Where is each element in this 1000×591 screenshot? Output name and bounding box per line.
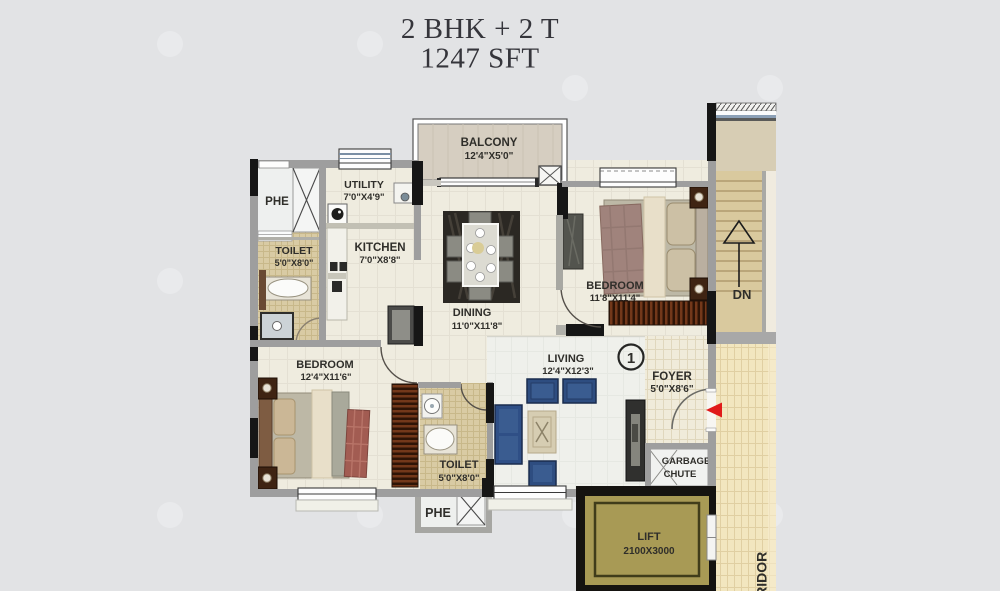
svg-text:BEDROOM: BEDROOM bbox=[586, 280, 643, 292]
svg-text:1247 SFT: 1247 SFT bbox=[420, 43, 539, 75]
svg-text:TOILET: TOILET bbox=[440, 459, 479, 471]
svg-text:12'4"X12'3": 12'4"X12'3" bbox=[542, 366, 594, 377]
svg-text:12'4"X11'6": 12'4"X11'6" bbox=[300, 372, 351, 383]
svg-text:LIFT: LIFT bbox=[637, 531, 660, 543]
svg-text:PHE: PHE bbox=[425, 506, 451, 520]
svg-text:PHE: PHE bbox=[265, 196, 289, 208]
svg-text:11'0"X11'8": 11'0"X11'8" bbox=[452, 321, 503, 332]
svg-text:BEDROOM: BEDROOM bbox=[296, 359, 353, 371]
svg-text:BALCONY: BALCONY bbox=[461, 137, 518, 149]
svg-text:5'0"X8'6": 5'0"X8'6" bbox=[650, 384, 693, 395]
svg-text:2 BHK + 2 T: 2 BHK + 2 T bbox=[401, 13, 559, 45]
svg-text:TOILET: TOILET bbox=[275, 245, 313, 257]
svg-text:LIVING: LIVING bbox=[548, 353, 585, 365]
svg-text:KITCHEN: KITCHEN bbox=[354, 242, 405, 254]
svg-text:5'0"X8'0": 5'0"X8'0" bbox=[439, 473, 480, 484]
svg-text:7'0"X8'8": 7'0"X8'8" bbox=[360, 255, 401, 266]
svg-text:5'0"X8'0": 5'0"X8'0" bbox=[275, 258, 314, 268]
svg-text:CHUTE: CHUTE bbox=[664, 469, 697, 480]
svg-text:2100X3000: 2100X3000 bbox=[623, 546, 675, 557]
svg-text:FOYER: FOYER bbox=[652, 371, 692, 383]
svg-text:CORRIDOR: CORRIDOR bbox=[754, 552, 770, 591]
svg-text:1: 1 bbox=[627, 350, 635, 367]
svg-text:DN: DN bbox=[733, 287, 752, 302]
svg-text:7'0"X4'9": 7'0"X4'9" bbox=[344, 192, 385, 203]
svg-text:12'4"X5'0": 12'4"X5'0" bbox=[465, 151, 514, 162]
svg-text:UTILITY: UTILITY bbox=[344, 179, 384, 191]
svg-text:DINING: DINING bbox=[453, 307, 492, 319]
svg-text:GARBAGE: GARBAGE bbox=[662, 456, 711, 467]
